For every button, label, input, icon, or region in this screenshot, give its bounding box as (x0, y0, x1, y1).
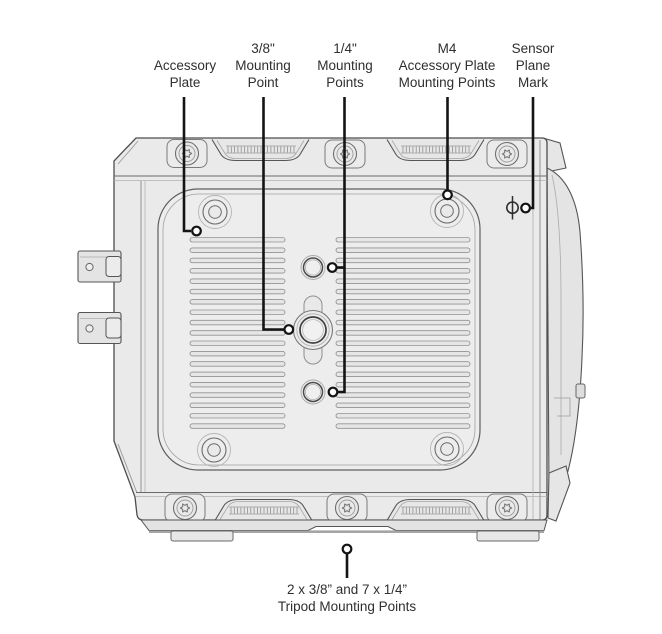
knurled-grip-recess (215, 500, 312, 521)
label-line: 3/8" (235, 40, 291, 57)
accessory-plate (158, 189, 480, 470)
knurled-grip-recess (212, 140, 309, 161)
quarter-inch-mount-bottom (301, 380, 325, 404)
label-line: Mounting Points (399, 74, 496, 91)
label-m4-accessory-plate-mounting-points: M4 Accessory Plate Mounting Points (399, 40, 496, 91)
camera-bottom-illustration (0, 0, 662, 634)
knurled-grip-recess (387, 140, 484, 161)
torx-screw (487, 494, 527, 522)
label-line: Tripod Mounting Points (278, 598, 416, 615)
label-accessory-plate: Accessory Plate (154, 57, 216, 91)
label-line: Mark (512, 74, 555, 91)
label-line: Point (235, 74, 291, 91)
base-plate (141, 520, 547, 541)
left-connector-tab (78, 251, 121, 282)
label-line: Mounting (235, 57, 291, 74)
left-foot (171, 531, 233, 541)
right-foot (477, 531, 539, 541)
knurled-grip-recess (387, 500, 484, 521)
side-panel-tab (576, 384, 585, 398)
torx-screw (327, 494, 367, 522)
label-tripod-mounting-points: 2 x 3/8” and 7 x 1/4” Tripod Mounting Po… (278, 581, 416, 615)
m4-corner-screw (431, 433, 464, 466)
m4-corner-screw (198, 434, 231, 467)
torx-screw (165, 494, 205, 522)
label-line: Accessory Plate (399, 57, 496, 74)
label-line: M4 (399, 40, 496, 57)
label-line: Sensor (512, 40, 555, 57)
label-sensor-plane-mark: Sensor Plane Mark (512, 40, 555, 91)
m4-corner-screw (199, 196, 232, 229)
diagram-canvas: Accessory Plate 3/8" Mounting Point 1/4"… (0, 0, 662, 634)
label-line: 2 x 3/8” and 7 x 1/4” (278, 581, 416, 598)
label-line: Mounting (317, 57, 373, 74)
torx-screw (487, 140, 527, 168)
leader-tripod (343, 545, 352, 578)
label-line: Points (317, 74, 373, 91)
label-line: Plane (512, 57, 555, 74)
label-three-eighths-mounting-point: 3/8" Mounting Point (235, 40, 291, 91)
label-quarter-inch-mounting-points: 1/4" Mounting Points (317, 40, 373, 91)
quarter-inch-mount-top (301, 256, 325, 280)
label-line: 1/4" (317, 40, 373, 57)
left-connector-tab (78, 313, 121, 344)
camera-right-side-panel (543, 138, 585, 521)
torx-screw (167, 140, 207, 168)
label-line: Accessory (154, 57, 216, 74)
label-line: Plate (154, 74, 216, 91)
